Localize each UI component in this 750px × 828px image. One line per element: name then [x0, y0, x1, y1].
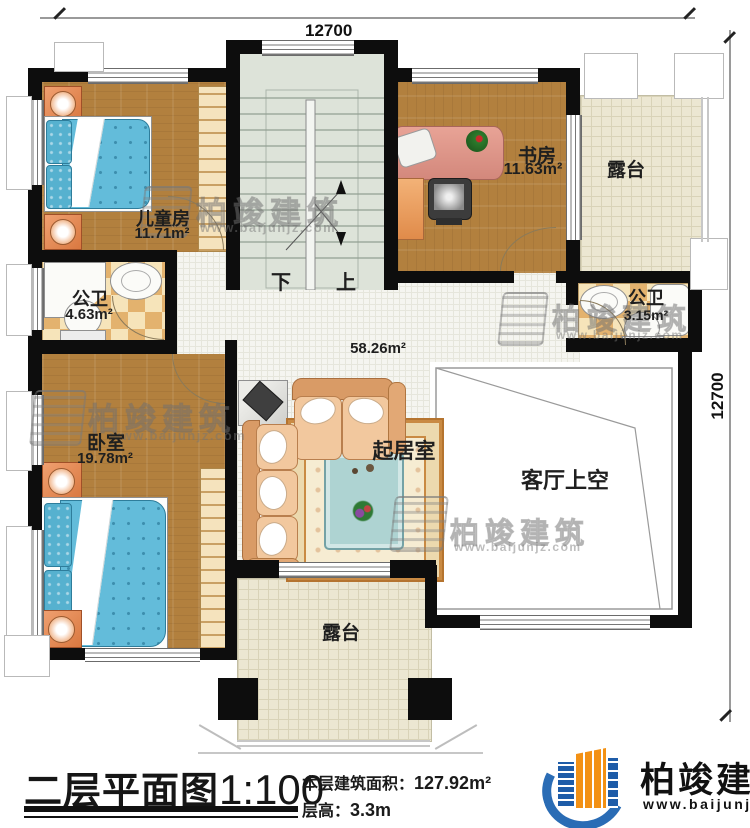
room-label-terrace-bottom: 露台 — [322, 618, 360, 645]
window-sill — [54, 42, 104, 72]
watermark-logo-icon — [29, 390, 87, 446]
window — [262, 40, 354, 56]
room-label-living: 起居室 — [373, 435, 436, 465]
sink-left-basin — [121, 270, 151, 292]
window-sill — [6, 96, 32, 190]
children-lamp-top-icon — [50, 91, 76, 117]
wall-segment — [28, 340, 172, 354]
watermark-logo-icon — [497, 292, 549, 346]
stairs — [240, 54, 384, 290]
brand-logo: 柏竣建筑 www.baijunjz.com — [540, 738, 748, 826]
wall-segment — [390, 560, 436, 578]
table-flowers-icon — [352, 500, 374, 522]
children-pillow-1 — [46, 120, 72, 164]
room-area-bedroom: 19.78m² — [77, 450, 133, 467]
watermark-url: www.baijunjz.com — [200, 220, 336, 235]
title-underline-thin — [24, 816, 298, 818]
logo-building-navy-icon — [608, 758, 618, 808]
wall-segment — [678, 352, 692, 628]
terrace-railing — [707, 97, 709, 242]
logo-building-blue-icon — [558, 762, 574, 806]
room-area-study: 11.63m² — [504, 161, 563, 179]
window-sill — [6, 526, 32, 640]
dimension-line-top — [40, 17, 695, 19]
wall-segment — [398, 271, 514, 283]
terrace-pillar — [584, 53, 638, 99]
building-area-value: 127.92m² — [414, 773, 491, 793]
table-decor-dot1 — [352, 468, 358, 474]
room-area-bath-right: 3.15m² — [624, 307, 668, 323]
wall-segment — [165, 250, 177, 354]
children-lamp-bottom-icon — [50, 219, 76, 245]
watermark-url: www.baijunjz.com — [556, 328, 684, 342]
floor-plan-canvas: 12700 12700 柏竣建筑 www.baijunjz.com 柏竣建筑 w… — [0, 0, 750, 828]
building-area-row: 本层建筑面积：127.92m² — [302, 770, 491, 794]
flare-line — [199, 724, 242, 750]
dimension-top-value: 12700 — [305, 21, 352, 41]
floor-height-value: 3.3m — [350, 800, 391, 820]
room-label-terrace-top: 露台 — [607, 155, 645, 182]
watermark-url: www.baijunjz.com — [110, 428, 246, 443]
dimension-line-right — [729, 30, 731, 722]
flare-line — [435, 724, 478, 750]
pillar — [408, 678, 452, 720]
window — [480, 615, 650, 630]
window-sill — [6, 391, 32, 471]
bedroom-pillow-1 — [44, 503, 72, 567]
wall-segment — [384, 40, 398, 290]
study-monitor-base — [436, 218, 462, 225]
stairs-down-label: 下 — [271, 266, 291, 295]
table-decor-dot2 — [366, 464, 374, 472]
terrace-railing — [237, 740, 430, 742]
terrace-top-floor — [580, 95, 703, 273]
room-area-living: 58.26m² — [350, 340, 406, 357]
window — [85, 648, 200, 662]
watermark-logo-icon — [389, 496, 449, 552]
study-monitor-screen — [434, 184, 464, 210]
logo-url-text: www.baijunjz.com — [643, 796, 750, 812]
terrace-railing — [237, 745, 430, 747]
wall-segment — [225, 340, 237, 660]
stairs-up-label: 上 — [336, 266, 356, 295]
building-area-label: 本层建筑面积： — [302, 776, 414, 793]
room-area-bath-left: 4.63m² — [65, 306, 113, 323]
ground-line — [198, 752, 483, 754]
sliding-door — [279, 562, 390, 578]
bedroom-lamp-top-icon — [48, 468, 75, 495]
window — [412, 68, 538, 84]
pillar — [218, 678, 258, 720]
study-plant-icon — [466, 130, 488, 152]
wall-segment — [28, 250, 168, 262]
terrace-bottom-floor — [237, 578, 432, 742]
children-pillow-2 — [46, 165, 72, 209]
window-sill — [4, 635, 50, 677]
room-area-children: 11.71m² — [134, 225, 189, 242]
window-sill — [6, 264, 32, 336]
wall-segment — [226, 40, 240, 290]
logo-building-orange-icon — [576, 748, 606, 808]
terrace-pillar — [674, 53, 724, 99]
terrace-railing — [701, 97, 703, 242]
title-underline-thick — [24, 806, 298, 812]
room-label-void: 客厅上空 — [521, 463, 609, 495]
wall-segment — [566, 271, 702, 283]
bedroom-lamp-bottom-icon — [48, 616, 75, 643]
watermark-url: www.baijunjz.com — [454, 540, 582, 554]
wall-segment — [237, 560, 279, 578]
floor-height-label: 层高： — [302, 803, 350, 820]
window — [566, 115, 582, 240]
terrace-pillar — [690, 238, 728, 290]
floor-height-row: 层高：3.3m — [302, 797, 391, 821]
dimension-right-value: 12700 — [708, 366, 728, 426]
